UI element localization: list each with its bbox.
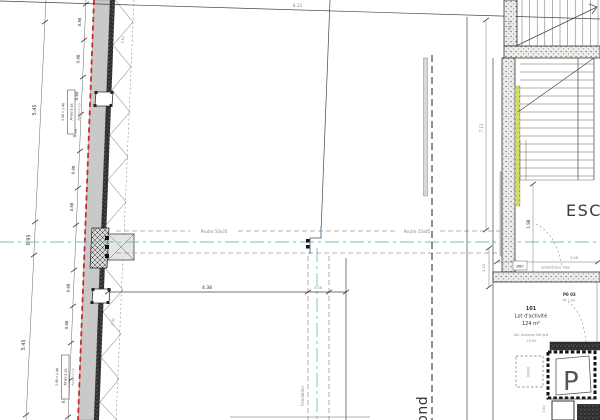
corner-wall (577, 404, 600, 420)
door-tag: P0 03 (563, 292, 576, 297)
dim-left-outer-mid: 0.95 (26, 234, 32, 245)
door-size: PT 1,04 (563, 299, 575, 303)
duct-box: 80x80 (516, 356, 543, 387)
stair-wall-left (502, 58, 515, 272)
duct-label: 80x80 (527, 367, 531, 377)
pillar-label: P (563, 367, 579, 397)
junction-detail (306, 226, 321, 254)
room-level: +0.00 (526, 339, 536, 343)
window-sill-label: Appui 0.10 (71, 368, 76, 385)
room-101: 101 Lot d'activité 124 m² Sol: Linoleum … (514, 292, 600, 420)
interior-wall (550, 342, 600, 350)
dim-left-inner: 0.88 (71, 165, 76, 175)
insulation-strip (515, 86, 520, 206)
dim-truss-lower: 2.02 (110, 318, 115, 326)
foundation-label: Fondation (300, 386, 305, 406)
window-sill-label: Appui 0.10 (77, 103, 82, 120)
dim-left-inner: 0.88 (65, 283, 70, 293)
room-floor-finish: Sol: Linoleum flat gris (514, 333, 549, 337)
room-area: 124 m² (522, 321, 540, 327)
pillar-box: P (548, 352, 595, 398)
tube-ref-label: Ø80 (516, 264, 523, 269)
window-opening-bottom (91, 288, 111, 304)
stair-treads-upper (522, 0, 598, 46)
stair-wall-bottom (493, 272, 600, 282)
left-dimension-chains: 5.45 0.95 5.45 0.88 0.88 0.60 0.88 0.88 … (21, 0, 89, 420)
staircase: BA 25 ESC (493, 0, 600, 342)
dim-right-height: 7.13 (479, 123, 484, 132)
dim-left-inner: 0.88 (75, 54, 80, 64)
fixture-box (552, 401, 574, 420)
dim-room-width: 4.38 (202, 285, 212, 291)
dim-left-inner: 0.88 (69, 202, 74, 212)
plan-drawing: 5.45 0.95 5.45 0.88 0.88 0.60 0.88 0.88 … (0, 0, 600, 420)
tube-label: périphérique Tube (541, 266, 570, 270)
room-name: Lot d'activité (515, 313, 547, 320)
window-ref-label: AT-6V E 45 (63, 368, 68, 385)
room-width-dimension: 4.38 0.38 (105, 285, 349, 294)
dim-left-outer-top: 5.45 (32, 104, 38, 115)
stair-name-label: ESC (566, 201, 600, 220)
dim-left-inner: 0.88 (77, 17, 82, 27)
stair-treads-inner (520, 64, 594, 176)
column-detail (90, 228, 134, 268)
dim-axis-gap: 0.38 (314, 286, 322, 290)
beam-label-left: Poutre 50x20 (201, 229, 228, 234)
stair-walk-line (516, 7, 597, 46)
wall-note: BA 25 (508, 20, 512, 29)
truss-chord-line (116, 0, 134, 420)
dim-left-inner: 0.88 (64, 320, 69, 330)
dim-right-lower: 2.10 (482, 264, 486, 272)
dim-top-width: 8.13 (293, 3, 302, 8)
dim-left-outer-bottom: 5.45 (21, 339, 27, 350)
stair-wall-top (504, 46, 600, 58)
dim-truss-upper: 3.61 (120, 36, 125, 44)
right-structure: 7.13 2.10 (424, 17, 504, 420)
circulation-arc (536, 224, 562, 266)
right-height-dimension: 7.13 (479, 18, 489, 232)
room-number: 101 (526, 306, 537, 312)
stair-flight-dimension: 1.98 (526, 182, 536, 278)
door-swing-arc (568, 302, 586, 342)
window-size-label: 1.40 x 1.40 (55, 368, 60, 386)
dim-corner: 0.40 (542, 405, 546, 412)
dim-stair-flight: 1.98 (526, 219, 531, 228)
right-lower-dimension: 2.10 (482, 246, 492, 289)
window-opening-top (94, 91, 114, 107)
window-ref-label: AT-6V E 45 (69, 103, 74, 120)
beam-label-right: Poutre 35x85 (404, 229, 431, 234)
partition-line (321, 0, 330, 232)
rail-bar (424, 58, 428, 196)
window-label-bottom: 1.40 x 1.40 AT-6V E 45 Appui 0.10 (55, 355, 76, 399)
facade-wall: 3.61 2.02 1.40 x 1.40 AT-6V E 45 Appui 0… (55, 0, 134, 420)
dim-stair-width: 3.08 (570, 256, 578, 260)
window-size-label: 1.40 x 1.40 (61, 103, 66, 121)
ceiling-label: plafond (415, 396, 431, 420)
floor-plan-canvas: 5.45 0.95 5.45 0.88 0.88 0.60 0.88 0.88 … (0, 0, 600, 420)
